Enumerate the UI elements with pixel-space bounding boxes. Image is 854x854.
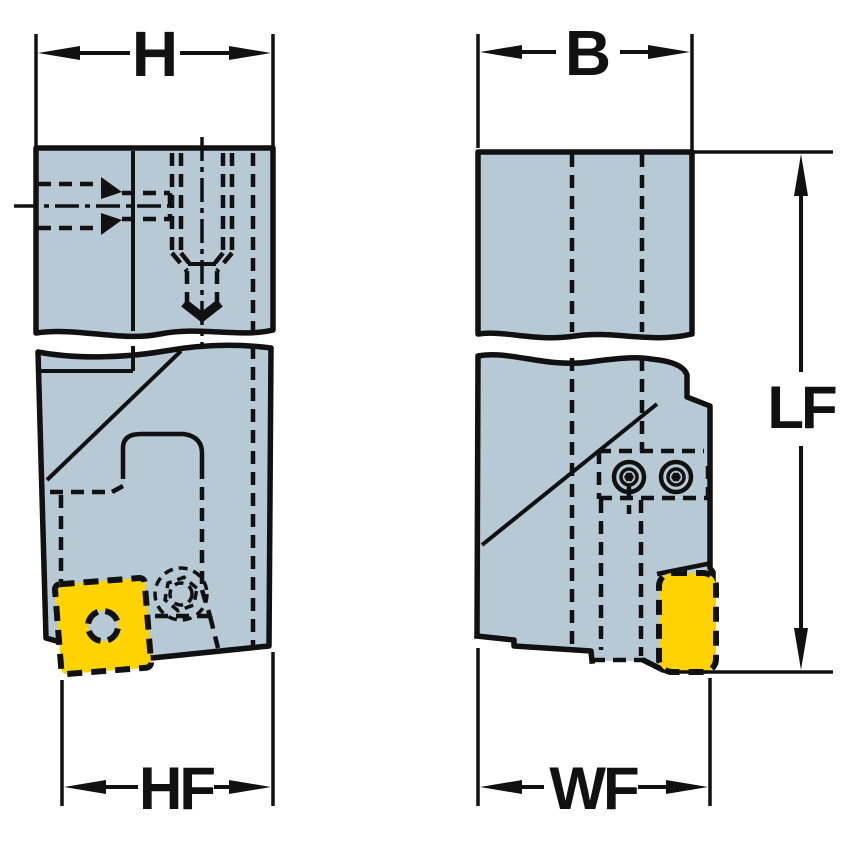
wf-arrow-left-icon (480, 780, 522, 794)
b-arrow-right-icon (648, 45, 690, 59)
tool-holder-dimension-drawing: H (0, 0, 854, 854)
dim-label-h: H (132, 18, 178, 90)
insert-hole (87, 610, 119, 642)
drawing-canvas: H (0, 0, 854, 854)
dim-label-hf: HF (139, 755, 214, 822)
dim-label-wf: WF (549, 755, 638, 822)
side-shank-body (478, 152, 692, 338)
front-shank-body (36, 148, 273, 336)
dimension-hf: HF (62, 652, 273, 822)
b-arrow-left-icon (480, 45, 522, 59)
lf-arrow-up-icon (794, 154, 808, 196)
lf-arrow-down-icon (794, 628, 808, 670)
side-view: B (477, 17, 836, 822)
wf-arrow-right-icon (666, 780, 708, 794)
h-arrow-right-icon (229, 46, 271, 60)
dim-label-b: B (565, 17, 611, 89)
cutting-insert-side (659, 573, 716, 672)
dim-label-lf: LF (767, 374, 836, 441)
hf-arrow-left-icon (64, 780, 106, 794)
front-insert-group (55, 578, 152, 675)
dimension-b: B (478, 17, 692, 150)
front-view: H (14, 18, 273, 822)
dimension-h: H (36, 18, 273, 146)
hf-arrow-right-icon (229, 780, 271, 794)
h-arrow-left-icon (38, 46, 80, 60)
